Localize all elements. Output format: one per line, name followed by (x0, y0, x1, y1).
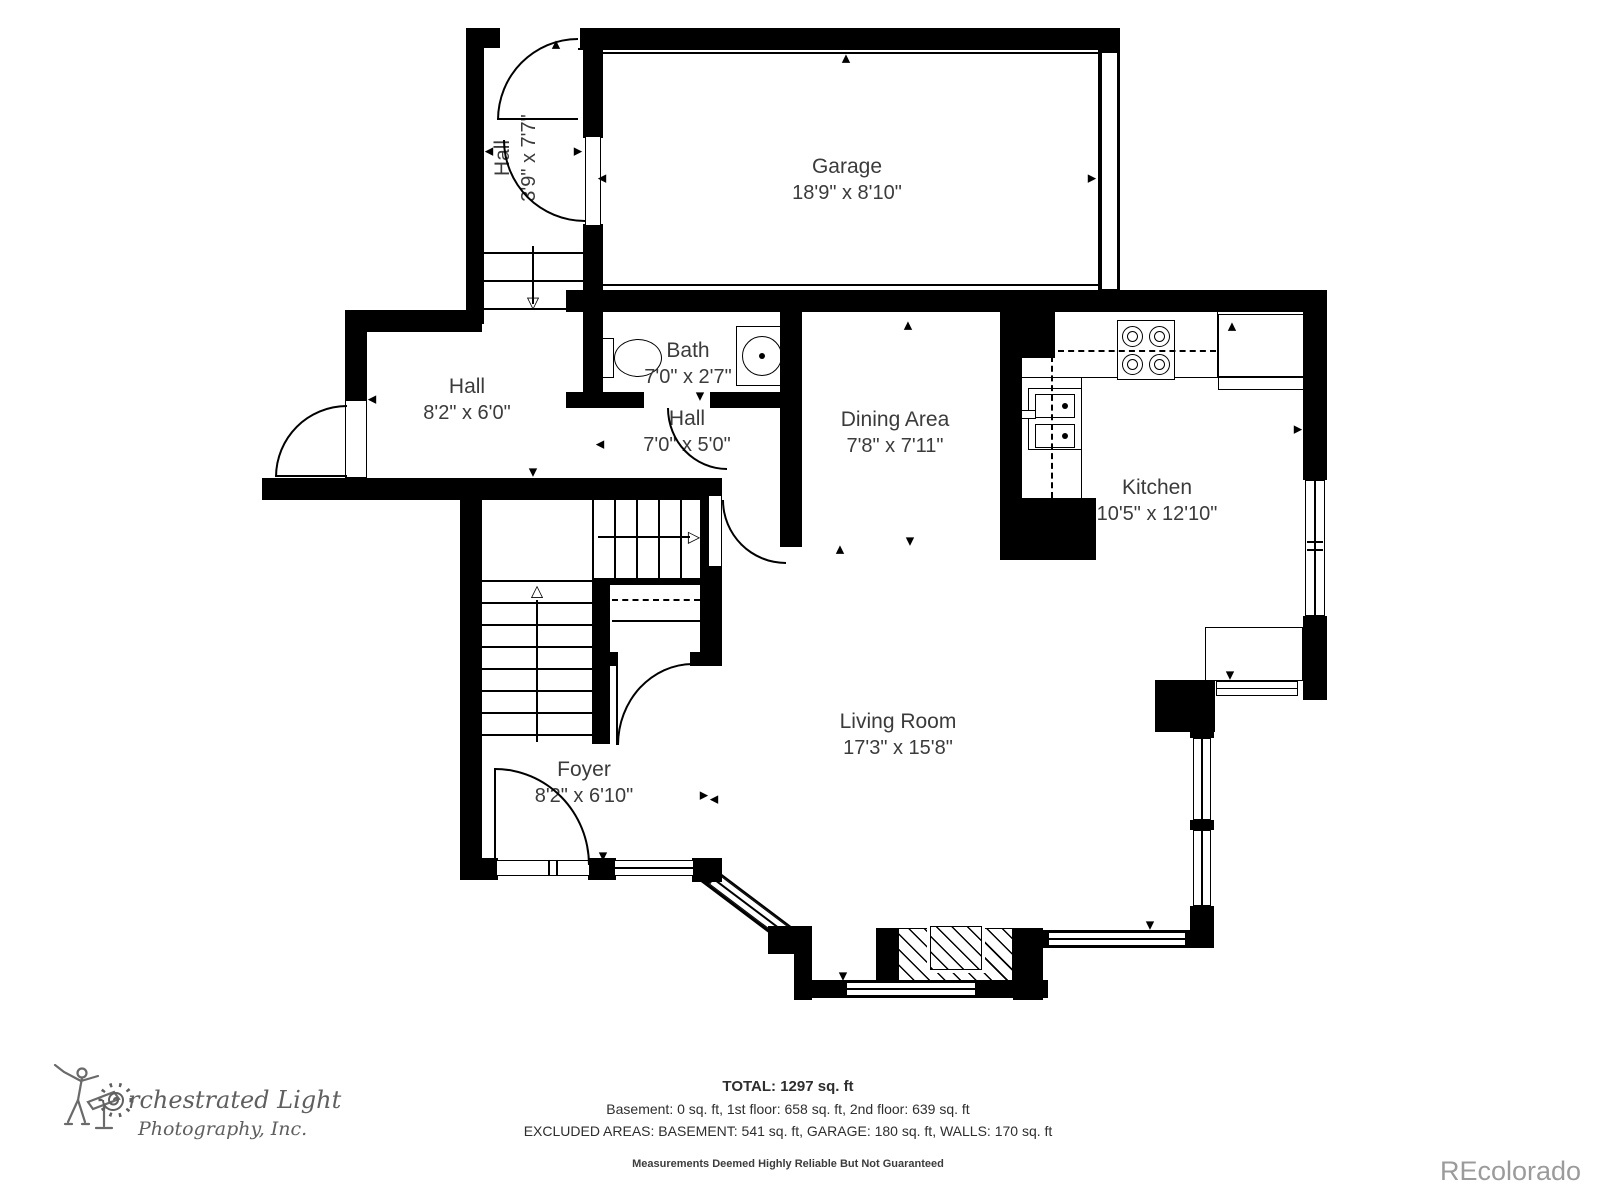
stair-tread (482, 712, 592, 714)
dimension-arrow: ◀ (598, 173, 606, 184)
dimension-arrow: ▼ (599, 851, 607, 862)
door-arc (722, 500, 786, 564)
dimension-arrow: ▼ (529, 467, 537, 478)
wall-segment (262, 478, 722, 500)
dimension-arrow: ▲ (552, 39, 560, 50)
door-arc (497, 38, 578, 120)
wall-segment (1120, 290, 1327, 312)
dimension-arrow: ▲ (836, 544, 844, 555)
window (1305, 480, 1325, 616)
room-label-living: Living Room 17'3" x 15'8" (840, 708, 957, 762)
dimension-arrow: ▲ (746, 398, 754, 409)
stair-tread (482, 690, 592, 692)
wall-segment (460, 478, 482, 880)
burner-inner (1154, 331, 1165, 342)
window (614, 860, 694, 876)
dimension-arrow: ▼ (1146, 920, 1154, 931)
wall-segment (345, 310, 482, 332)
line (1307, 541, 1323, 543)
stair-tread (482, 734, 592, 736)
room-label-bath: Bath 7'0" x 2'7" (644, 337, 731, 391)
stair-direction-arrow: ▽ (527, 295, 539, 311)
dashed-line (1058, 350, 1216, 352)
burner-inner (1127, 359, 1138, 370)
sink-drain (1062, 403, 1068, 409)
wall-segment (1000, 312, 1022, 502)
wall-segment (1013, 928, 1043, 1000)
bath-sink-drain (759, 353, 765, 359)
wall-segment (692, 858, 722, 882)
dimension-arrow: ▶ (1294, 424, 1302, 435)
line (612, 620, 700, 622)
burner-inner (1127, 331, 1138, 342)
line (556, 861, 558, 875)
line (536, 600, 538, 742)
dimension-arrow: ▼ (1226, 670, 1234, 681)
stair-direction-arrow: △ (531, 583, 543, 599)
stair-tread (614, 500, 616, 578)
wall-segment (690, 652, 722, 666)
dimension-arrow: ◀ (368, 394, 376, 405)
wall-segment (583, 224, 603, 408)
dashed-line (1051, 356, 1053, 498)
dashed-line (612, 599, 700, 601)
dimension-arrow: ◀ (466, 794, 474, 805)
wall-segment (1190, 820, 1214, 830)
sink-drain (1062, 433, 1068, 439)
dimension-arrow: ▶ (784, 441, 792, 452)
window (1193, 830, 1211, 906)
window (1048, 932, 1186, 946)
wall-segment (466, 28, 484, 324)
kitchen-faucet-icon (1020, 410, 1036, 419)
door-arc (617, 663, 693, 745)
room-label-kitchen: Kitchen 10'5" x 12'10" (1097, 474, 1218, 528)
stair-tread (658, 500, 660, 578)
recolorado-watermark: REcolorado (1440, 1156, 1581, 1187)
stair-tread (482, 668, 592, 670)
line (598, 536, 690, 538)
door-arc (503, 140, 585, 222)
stair-tread (680, 500, 682, 578)
line (548, 861, 550, 875)
door-arc (667, 408, 727, 470)
dimension-arrow: ▲ (842, 53, 850, 64)
stair-tread (482, 602, 592, 604)
dimension-arrow: ▶ (1004, 431, 1012, 442)
door-frame (1101, 52, 1118, 290)
dimension-arrow: ▲ (904, 320, 912, 331)
dimension-arrow: ▼ (839, 971, 847, 982)
line (1307, 549, 1323, 551)
stair-direction-arrow: ▷ (688, 529, 700, 545)
room-label-dining: Dining Area 7'8" x 7'11" (841, 406, 950, 460)
wall-segment (1303, 312, 1327, 480)
dimension-arrow: ▶ (700, 790, 708, 801)
line (616, 663, 618, 745)
door-frame (345, 400, 367, 478)
floorplan-page: Hall 3'9" x 7'7" Garage 18'9" x 8'10" Ba… (0, 0, 1600, 1200)
wall-segment (583, 48, 603, 138)
door-arc (275, 405, 347, 477)
window (846, 982, 976, 996)
room-label-garage: Garage 18'9" x 8'10" (792, 153, 902, 207)
dimension-arrow: ◀ (596, 439, 604, 450)
sink-basin (1035, 424, 1075, 448)
dimension-arrow: ▲ (1228, 321, 1236, 332)
photographer-logo: rchestrated Light Photography, Inc. (52, 1040, 352, 1170)
wall-segment (345, 332, 367, 404)
dimension-arrow: ◀ (710, 794, 718, 805)
dimension-arrow: ◀ (485, 146, 493, 157)
stair-tread (484, 280, 583, 282)
room-label-hall-left: Hall 8'2" x 6'0" (423, 373, 510, 427)
stair-tread (636, 500, 638, 578)
burner-inner (1154, 359, 1165, 370)
dimension-arrow: ▼ (696, 391, 704, 402)
wall-segment (592, 578, 610, 744)
wall-segment (466, 28, 502, 48)
dimension-arrow: ▶ (1088, 173, 1096, 184)
sink-basin (1035, 394, 1075, 418)
wall-segment (1000, 498, 1096, 560)
line (275, 475, 347, 477)
stair-tread (482, 624, 592, 626)
line (602, 284, 1098, 286)
wall-segment (1155, 680, 1215, 732)
dimension-arrow: ▼ (906, 536, 914, 547)
firebox-icon (930, 926, 982, 970)
stair-tread (482, 646, 592, 648)
dimension-arrow: ▶ (570, 394, 578, 405)
dimension-arrow: ▶ (574, 146, 582, 157)
wall-segment (592, 578, 722, 585)
dimension-arrow: ▼ (842, 292, 850, 303)
line (497, 118, 578, 120)
logo-text-line1: rchestrated Light (128, 1086, 341, 1114)
bay-window-seat (1205, 627, 1303, 681)
line (1219, 376, 1303, 378)
wall-segment (578, 28, 1120, 50)
window (1216, 681, 1298, 696)
line (592, 500, 594, 578)
door-frame (708, 495, 722, 567)
logo-text-line2: Photography, Inc. (138, 1118, 307, 1140)
wall-segment (460, 858, 498, 880)
stair-tread (484, 252, 583, 254)
wall-segment (1190, 906, 1214, 948)
wall-segment (1303, 616, 1327, 700)
window (1193, 738, 1211, 820)
dimension-arrow: ◀ (594, 353, 602, 364)
line (494, 768, 496, 865)
